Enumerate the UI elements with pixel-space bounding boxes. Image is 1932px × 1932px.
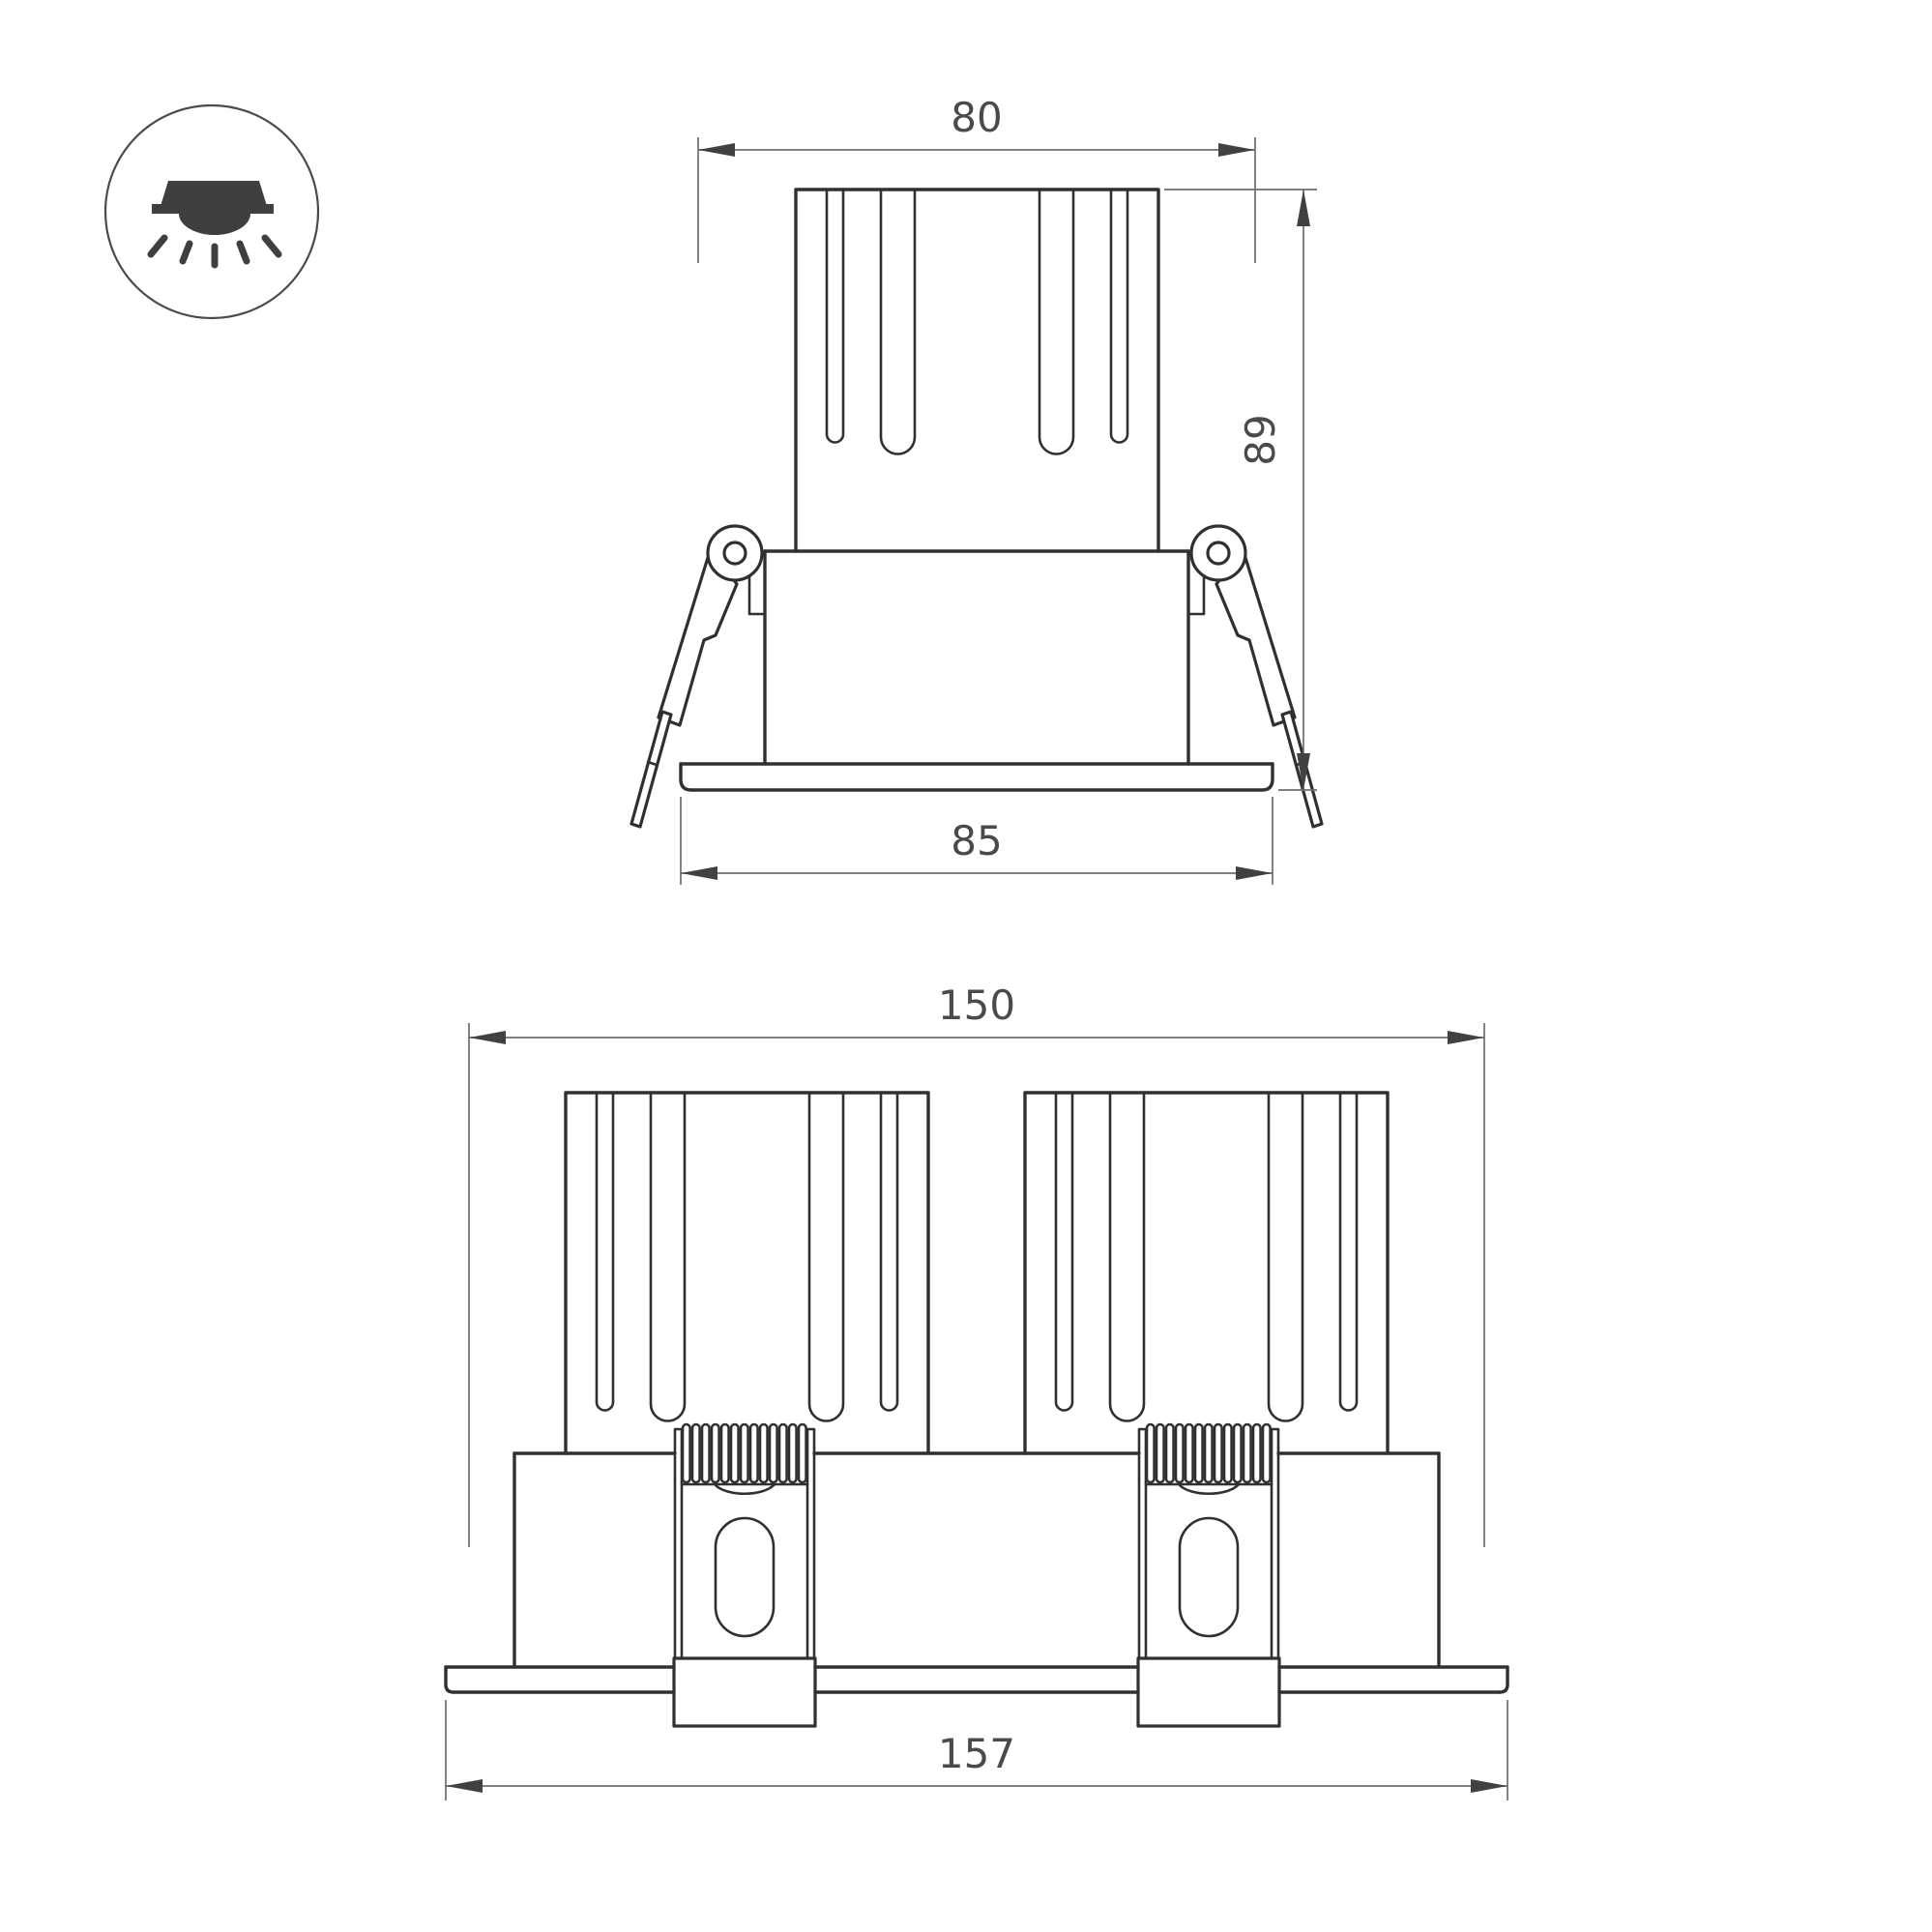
- trim-housing: [749, 551, 1204, 764]
- dim-150-label: 150: [938, 981, 1015, 1029]
- clamp-spring-ribs-right: [1147, 1424, 1271, 1482]
- twin-housing: [514, 1453, 1439, 1667]
- flange-single: [681, 764, 1273, 790]
- heatsink-body: [796, 190, 1158, 551]
- wire-clamp-left: [674, 1424, 815, 1726]
- dimension-150: 150: [469, 981, 1484, 1547]
- drawing-canvas: 80 89 85: [0, 0, 1932, 1932]
- flange-twin: [446, 1667, 1508, 1692]
- dim-157-label: 157: [938, 1730, 1015, 1777]
- twin-luminaire-view: 150 157: [446, 981, 1508, 1800]
- recessed-downlight-icon: [105, 105, 318, 318]
- single-luminaire-view: 80 89 85: [631, 94, 1322, 885]
- clamp-spring-ribs-left: [683, 1424, 806, 1482]
- dim-89-label: 89: [1237, 414, 1284, 465]
- dimensional-drawing: 80 89 85: [0, 0, 1932, 1932]
- spring-clip-left: [631, 526, 762, 827]
- dim-85-label: 85: [951, 817, 1002, 864]
- dimension-157: 157: [446, 1700, 1508, 1800]
- dim-80-label: 80: [951, 94, 1002, 141]
- heatsink-left: [566, 1093, 928, 1453]
- heatsink-right: [1025, 1093, 1388, 1453]
- wire-clamp-right: [1138, 1424, 1279, 1726]
- dimension-85: 85: [681, 797, 1273, 885]
- dimension-80: 80: [698, 94, 1255, 263]
